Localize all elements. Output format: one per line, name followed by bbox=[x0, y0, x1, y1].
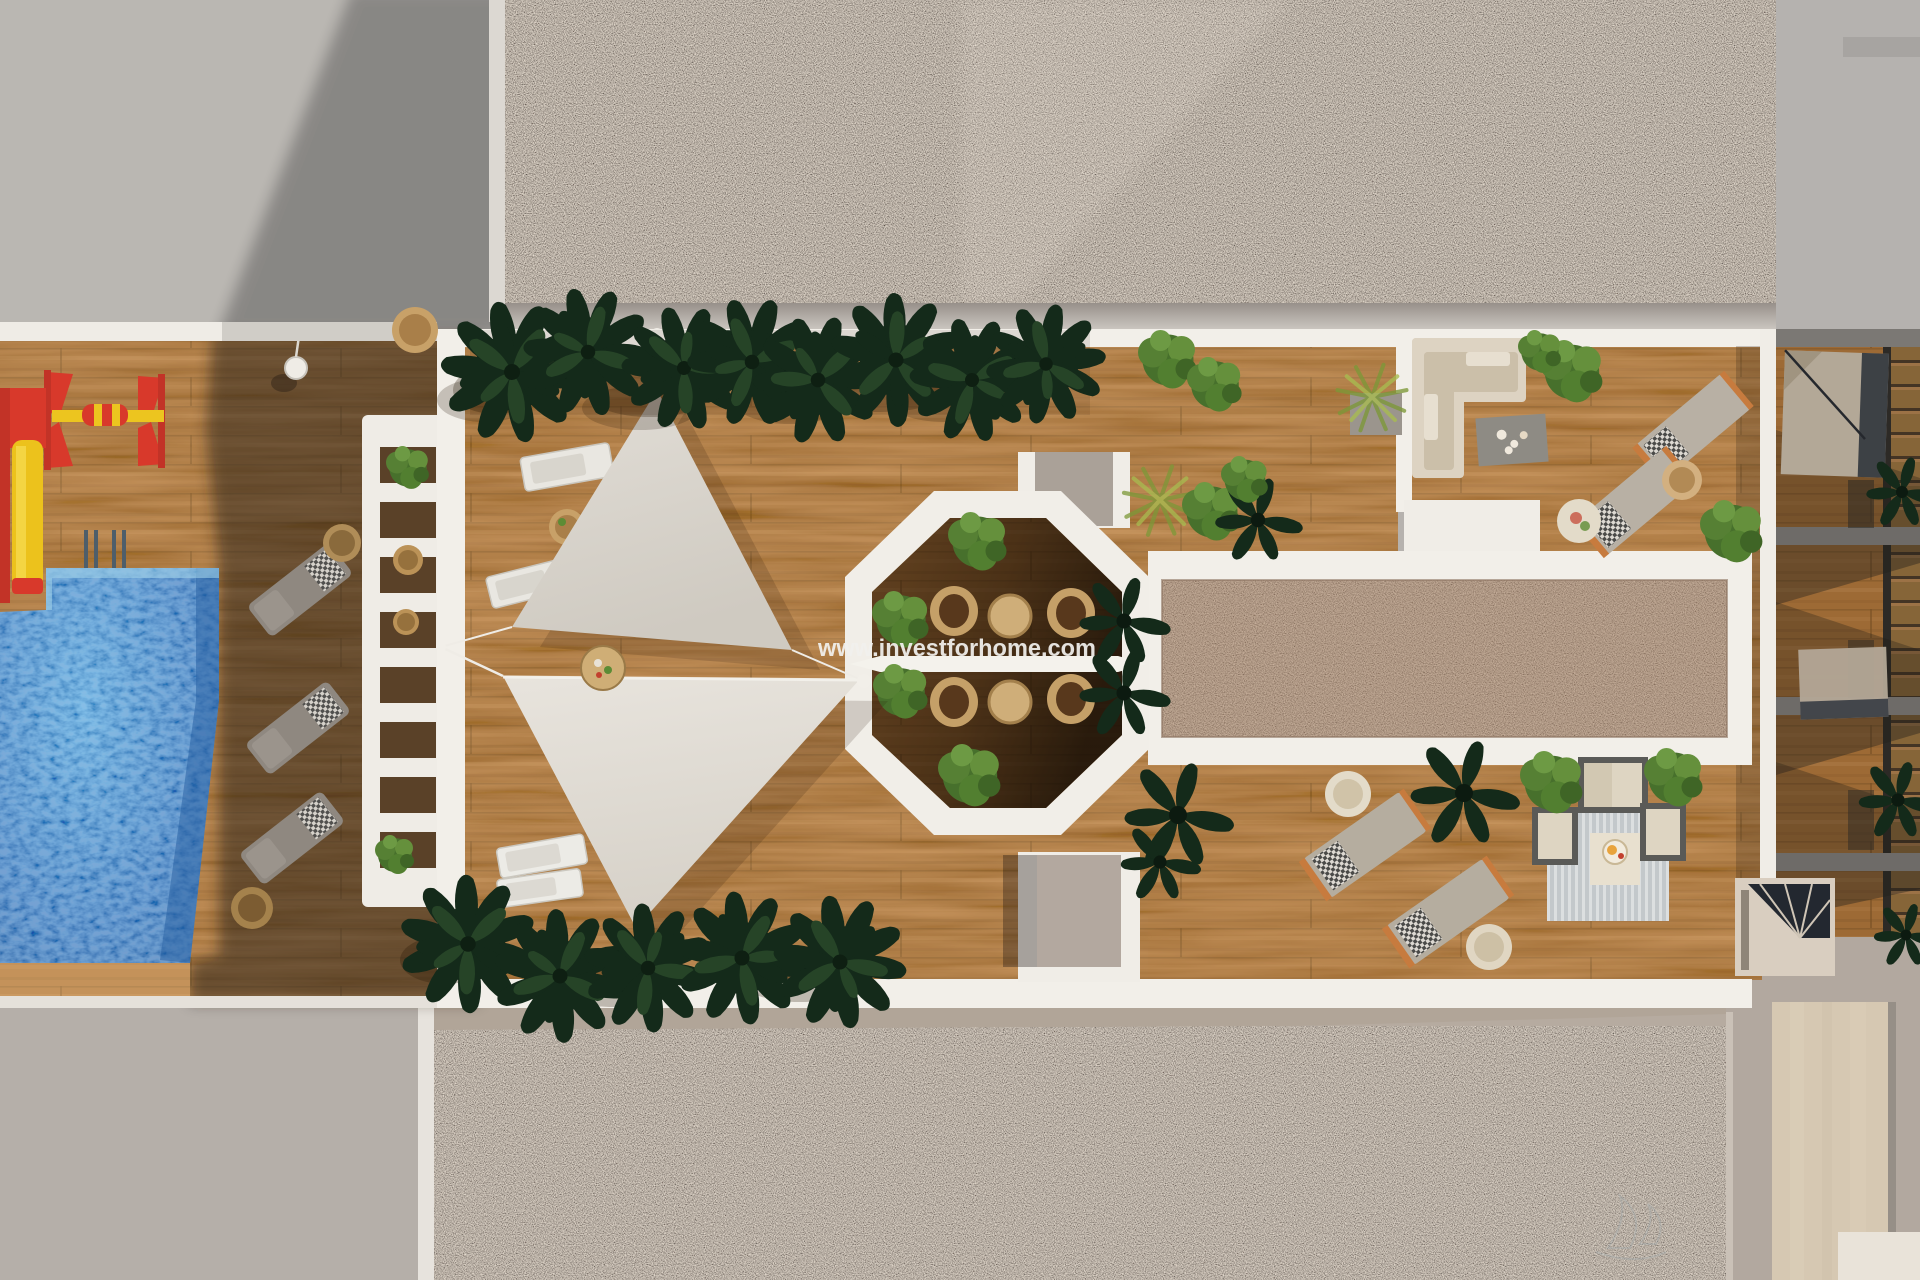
svg-text:www.investforhome.com: www.investforhome.com bbox=[817, 635, 1096, 662]
